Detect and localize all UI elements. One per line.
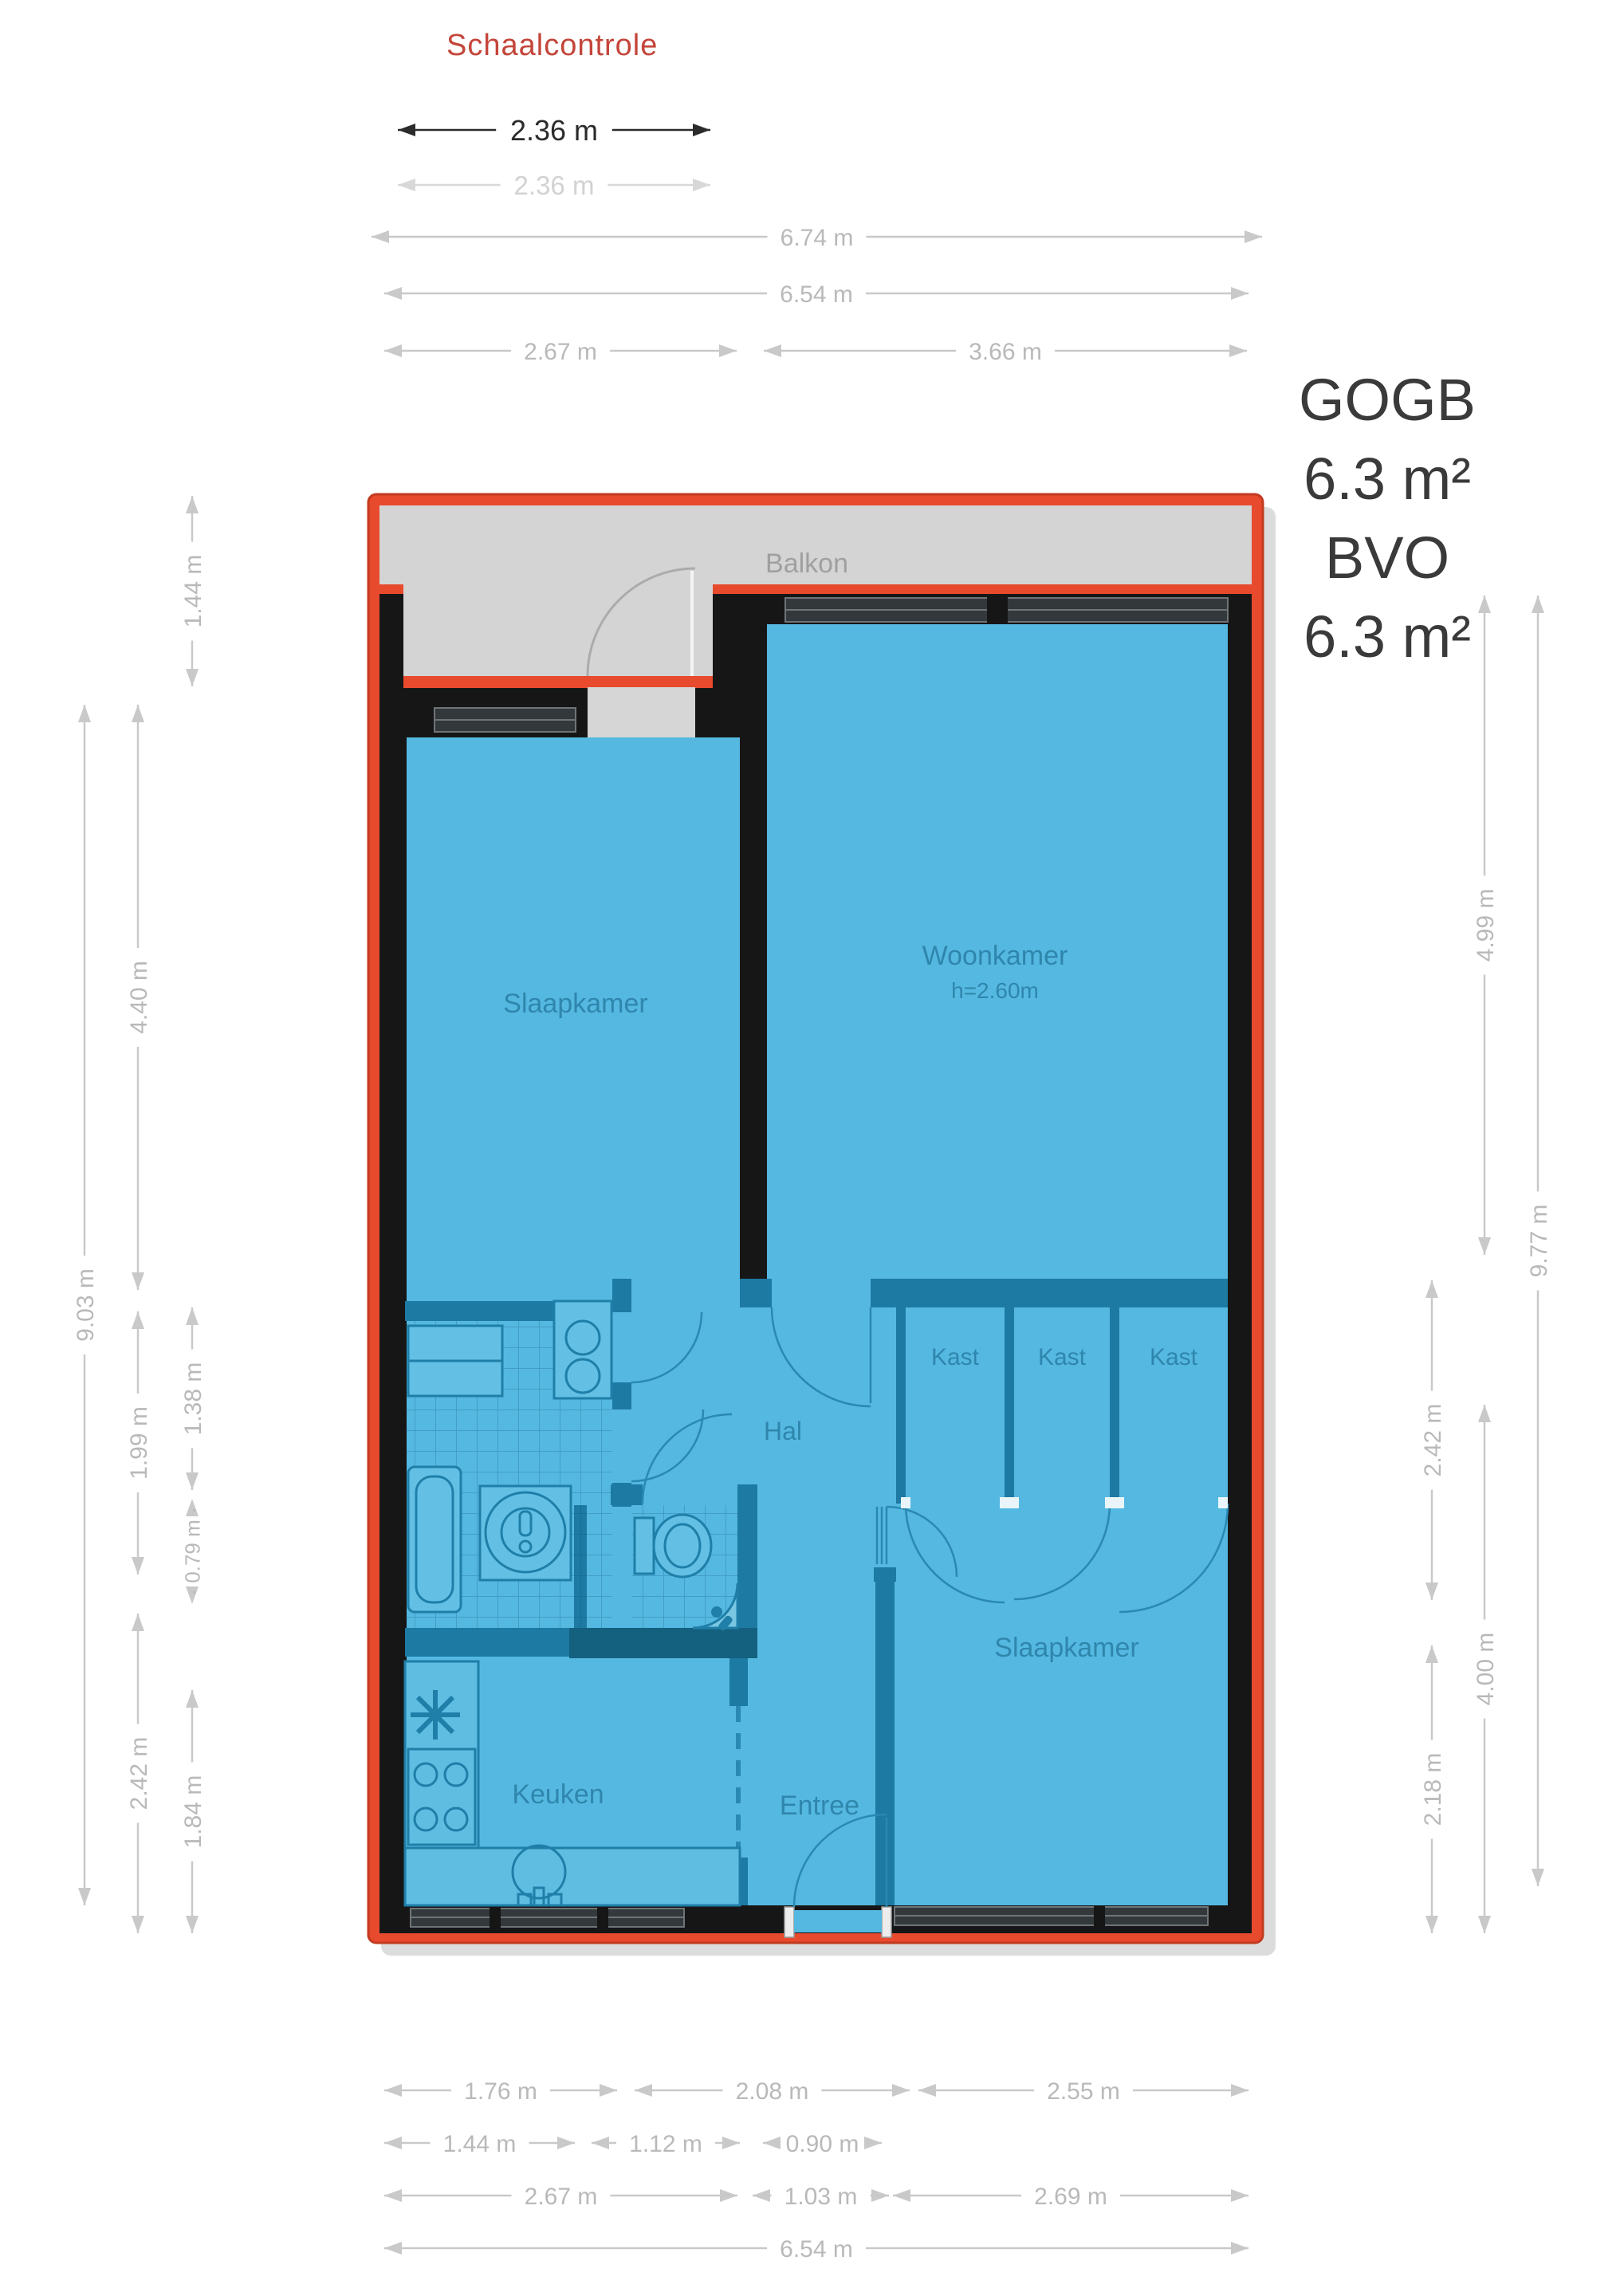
hall-label: Hal — [764, 1417, 802, 1445]
dim-l138: 1.38 m — [180, 1307, 206, 1490]
dim-r242: 2.42 m — [1420, 1280, 1446, 1600]
svg-text:1.44 m: 1.44 m — [443, 2131, 517, 2157]
extractor-icon — [411, 1690, 460, 1740]
balcony-label: Balkon — [765, 548, 848, 579]
svg-text:1.84 m: 1.84 m — [180, 1775, 206, 1849]
dim-b269: 2.69 m — [893, 2184, 1248, 2210]
dim-b176: 1.76 m — [384, 2078, 617, 2105]
dim-r499: 4.99 m — [1473, 596, 1499, 1255]
dim-b112: 1.12 m — [592, 2131, 740, 2157]
interior-floor — [407, 624, 1228, 1905]
svg-text:2.69 m: 2.69 m — [1034, 2184, 1107, 2210]
dim-t654: 6.54 m — [384, 281, 1248, 308]
dim-l079: · 0.79 m · — [180, 1499, 204, 1604]
svg-text:1.44 m: 1.44 m — [180, 555, 206, 628]
svg-text:0.90 m: 0.90 m — [786, 2131, 859, 2157]
svg-text:2.36 m: 2.36 m — [510, 114, 598, 147]
svg-text:6.54 m: 6.54 m — [780, 2236, 853, 2263]
dim-l440: 4.40 m — [126, 705, 152, 1290]
svg-text:9.77 m: 9.77 m — [1526, 1205, 1552, 1278]
svg-text:2.36 m: 2.36 m — [514, 171, 595, 200]
svg-text:2.67 m: 2.67 m — [525, 2184, 598, 2210]
dim-l903: 9.03 m — [73, 705, 99, 1905]
svg-text:2.42 m: 2.42 m — [1420, 1404, 1446, 1477]
bedroom-right-label: Slaapkamer — [994, 1633, 1138, 1663]
wall-bedroom-living — [740, 624, 767, 1307]
svg-text:2.42 m: 2.42 m — [126, 1737, 152, 1810]
svg-text:2.18 m: 2.18 m — [1420, 1753, 1446, 1826]
svg-text:9.03 m: 9.03 m — [73, 1268, 99, 1342]
svg-text:2.08 m: 2.08 m — [736, 2078, 809, 2105]
svg-text:1.38 m: 1.38 m — [180, 1362, 206, 1436]
closet-1-label: Kast — [931, 1344, 980, 1370]
svg-text:1.99 m: 1.99 m — [126, 1406, 152, 1480]
dim-b208: 2.08 m — [635, 2078, 910, 2105]
svg-text:4.00 m: 4.00 m — [1473, 1633, 1499, 1706]
closet-2-label: Kast — [1038, 1344, 1087, 1370]
floor-plan-page: { "scale_title": "Schaalcontrole", "gogb… — [0, 0, 1624, 2296]
dim-b255: 2.55 m — [918, 2078, 1248, 2105]
closet-3-label: Kast — [1150, 1344, 1198, 1370]
dim-g236: 2.36 m — [398, 171, 710, 200]
svg-text:4.99 m: 4.99 m — [1473, 889, 1499, 962]
floor-plan-svg: Balkon Woonkamer h=2.60m Slaapkamer Kast… — [0, 0, 1624, 2296]
dim-t366: 3.66 m — [764, 339, 1247, 365]
dim-l242: 2.42 m — [126, 1614, 152, 1933]
svg-text:1.76 m: 1.76 m — [464, 2078, 537, 2105]
dim-l144: 1.44 m — [180, 496, 206, 686]
svg-text:4.40 m: 4.40 m — [126, 961, 152, 1034]
dim-t674: 6.74 m — [372, 225, 1262, 251]
svg-text:1.03 m: 1.03 m — [784, 2184, 858, 2210]
svg-text:3.66 m: 3.66 m — [969, 339, 1042, 365]
svg-text:2.67 m: 2.67 m — [524, 339, 597, 365]
dim-l184: 1.84 m — [180, 1690, 206, 1933]
svg-text:2.55 m: 2.55 m — [1047, 2078, 1120, 2105]
living-room-label: Woonkamer — [922, 941, 1068, 971]
dim-r977: 9.77 m — [1526, 596, 1552, 1886]
dim-r400: 4.00 m — [1473, 1405, 1499, 1933]
dim-l199: 1.99 m — [126, 1311, 152, 1575]
dim-b144: 1.44 m — [384, 2131, 575, 2157]
dim-s236: 2.36 m — [398, 114, 710, 147]
dim-r218: 2.18 m — [1420, 1645, 1446, 1933]
dim-t267: 2.67 m — [384, 339, 737, 365]
living-room-height-label: h=2.60m — [951, 978, 1039, 1003]
dim-b103: 1.03 m — [753, 2184, 889, 2210]
svg-text:6.74 m: 6.74 m — [781, 225, 854, 251]
svg-text:1.12 m: 1.12 m — [629, 2131, 702, 2157]
dim-b267: 2.67 m — [384, 2184, 737, 2210]
svg-text:6.54 m: 6.54 m — [780, 281, 853, 308]
dim-b090: 0.90 m — [763, 2131, 882, 2157]
svg-text:· 0.79 m ·: · 0.79 m · — [180, 1507, 204, 1595]
kitchen-label: Keuken — [512, 1779, 604, 1810]
entry-label: Entree — [780, 1791, 859, 1821]
bedroom-left-label: Slaapkamer — [503, 989, 647, 1019]
dim-b654: 6.54 m — [384, 2236, 1248, 2263]
